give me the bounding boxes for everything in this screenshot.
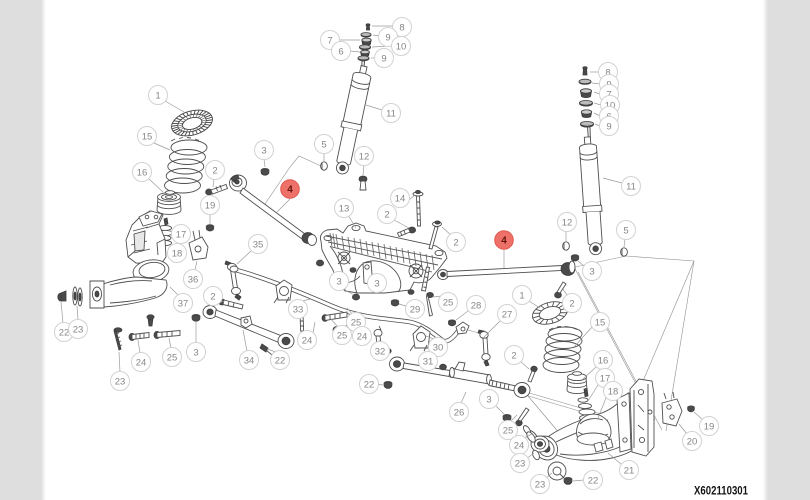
svg-text:26: 26: [454, 408, 465, 419]
svg-text:2: 2: [569, 299, 574, 310]
svg-text:3: 3: [336, 277, 341, 288]
svg-text:30: 30: [433, 343, 444, 354]
svg-text:6: 6: [338, 47, 343, 58]
svg-text:23: 23: [535, 480, 546, 491]
svg-text:23: 23: [115, 377, 126, 388]
svg-text:4: 4: [287, 185, 293, 196]
svg-text:25: 25: [503, 426, 514, 437]
svg-text:22: 22: [588, 476, 599, 487]
svg-text:27: 27: [502, 310, 513, 321]
svg-text:36: 36: [188, 275, 199, 286]
svg-text:2: 2: [453, 238, 458, 249]
svg-text:35: 35: [253, 240, 264, 251]
svg-text:11: 11: [626, 182, 636, 193]
svg-text:3: 3: [261, 146, 266, 157]
svg-text:24: 24: [514, 441, 525, 452]
svg-text:8: 8: [399, 23, 404, 34]
svg-text:1: 1: [519, 291, 524, 302]
svg-text:18: 18: [608, 387, 619, 398]
svg-text:19: 19: [704, 422, 715, 433]
svg-text:3: 3: [486, 395, 491, 406]
svg-text:7: 7: [327, 36, 332, 47]
svg-text:11: 11: [386, 109, 396, 120]
svg-text:5: 5: [623, 226, 628, 237]
svg-text:25: 25: [167, 353, 178, 364]
svg-text:2: 2: [210, 292, 215, 303]
svg-text:14: 14: [395, 194, 406, 205]
svg-text:20: 20: [687, 437, 698, 448]
svg-text:25: 25: [337, 331, 348, 342]
svg-text:9: 9: [606, 122, 611, 133]
svg-text:25: 25: [443, 298, 454, 309]
svg-text:37: 37: [178, 299, 189, 310]
svg-text:17: 17: [176, 230, 187, 241]
svg-text:4: 4: [501, 236, 507, 247]
svg-text:28: 28: [471, 301, 482, 312]
svg-text:16: 16: [598, 356, 609, 367]
svg-text:15: 15: [142, 132, 153, 143]
svg-text:2: 2: [384, 210, 389, 221]
svg-text:23: 23: [515, 459, 526, 470]
svg-text:10: 10: [396, 42, 407, 53]
svg-text:3: 3: [589, 267, 594, 278]
svg-text:29: 29: [410, 305, 421, 316]
svg-text:24: 24: [302, 336, 313, 347]
svg-text:22: 22: [59, 328, 70, 339]
svg-text:5: 5: [321, 140, 326, 151]
svg-text:12: 12: [359, 152, 370, 163]
svg-text:13: 13: [339, 204, 350, 215]
svg-text:23: 23: [73, 325, 84, 336]
svg-text:24: 24: [357, 332, 368, 343]
svg-text:32: 32: [375, 347, 386, 358]
svg-text:31: 31: [423, 357, 434, 368]
svg-text:24: 24: [136, 358, 147, 369]
svg-text:16: 16: [137, 168, 148, 179]
svg-text:18: 18: [172, 249, 183, 260]
svg-text:34: 34: [244, 356, 255, 367]
svg-text:33: 33: [293, 305, 304, 316]
svg-text:3: 3: [193, 348, 198, 359]
svg-text:15: 15: [595, 318, 606, 329]
svg-text:9: 9: [385, 33, 390, 44]
svg-text:22: 22: [275, 356, 286, 367]
svg-text:12: 12: [562, 218, 573, 229]
svg-text:22: 22: [364, 380, 375, 391]
svg-text:1: 1: [155, 91, 160, 102]
svg-text:21: 21: [624, 466, 635, 477]
svg-text:19: 19: [205, 201, 216, 212]
svg-text:3: 3: [374, 279, 379, 290]
svg-text:2: 2: [212, 166, 217, 177]
svg-text:2: 2: [511, 351, 516, 362]
svg-text:X602110301: X602110301: [694, 486, 748, 498]
svg-text:9: 9: [381, 54, 386, 65]
